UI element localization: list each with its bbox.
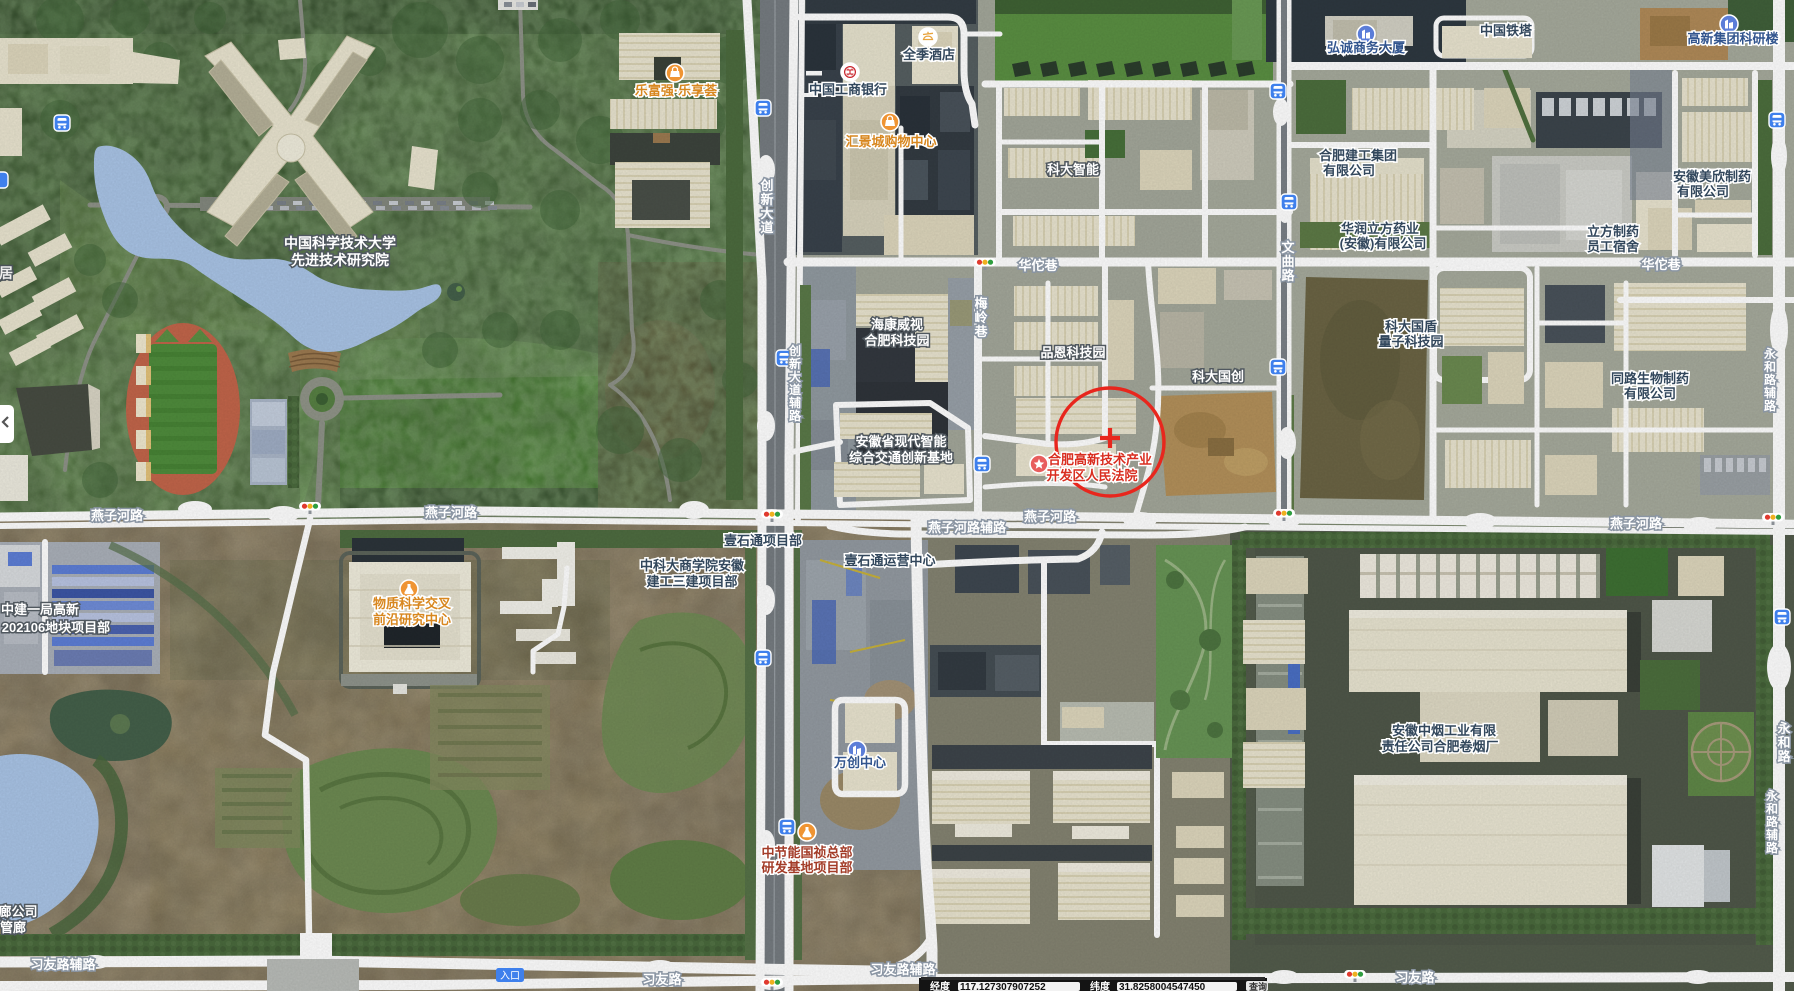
svg-text:文: 文: [1281, 240, 1295, 255]
svg-text:华润立方药业: 华润立方药业: [1341, 221, 1419, 236]
svg-text:科大智能: 科大智能: [1047, 162, 1099, 177]
svg-text:117.127307907252: 117.127307907252: [960, 982, 1046, 991]
svg-text:(安徽)有限公司: (安徽)有限公司: [1340, 236, 1427, 251]
svg-text:路: 路: [1764, 372, 1777, 387]
svg-text:汇景城购物中心: 汇景城购物中心: [845, 134, 936, 149]
svg-text:辅: 辅: [1766, 827, 1778, 842]
svg-text:弘诚商务大厦: 弘诚商务大厦: [1327, 40, 1406, 55]
svg-text:新: 新: [760, 192, 773, 207]
svg-text:壹石通运营中心: 壹石通运营中心: [844, 553, 935, 568]
svg-text:前沿研究中心: 前沿研究中心: [373, 612, 451, 627]
svg-text:查询: 查询: [1248, 981, 1267, 991]
svg-text:202106地块项目部: 202106地块项目部: [2, 620, 110, 635]
svg-text:华佗巷: 华佗巷: [1018, 258, 1058, 273]
svg-text:入口: 入口: [500, 971, 520, 982]
svg-text:燕子河路辅路: 燕子河路辅路: [928, 520, 1007, 535]
svg-text:安徽省现代智能: 安徽省现代智能: [855, 434, 946, 449]
svg-text:管廊: 管廊: [0, 920, 26, 935]
svg-text:综合交通创新基地: 综合交通创新基地: [849, 450, 953, 465]
svg-text:燕子河路: 燕子河路: [425, 505, 478, 520]
svg-text:研发基地项目部: 研发基地项目部: [761, 860, 852, 875]
svg-text:习友路: 习友路: [1395, 970, 1435, 985]
svg-text:永: 永: [1776, 721, 1791, 736]
svg-text:合肥高新技术产业: 合肥高新技术产业: [1048, 452, 1152, 467]
svg-text:责任公司合肥卷烟厂: 责任公司合肥卷烟厂: [1381, 739, 1498, 754]
svg-text:全季酒店: 全季酒店: [902, 47, 955, 62]
svg-text:中建一局高新: 中建一局高新: [1, 602, 79, 617]
svg-text:曲: 曲: [1281, 254, 1294, 269]
svg-text:中国铁塔: 中国铁塔: [1480, 23, 1533, 38]
svg-text:开发区人民法院: 开发区人民法院: [1046, 468, 1137, 483]
svg-text:路: 路: [789, 408, 802, 423]
svg-text:建工三建项目部: 建工三建项目部: [646, 574, 737, 589]
svg-text:乐富强·乐享荟: 乐富强·乐享荟: [635, 83, 718, 98]
svg-text:科大国创: 科大国创: [1192, 369, 1244, 384]
svg-text:路: 路: [1777, 749, 1791, 764]
svg-text:岭: 岭: [974, 310, 987, 325]
svg-text:高新集团科研楼: 高新集团科研楼: [1687, 31, 1778, 46]
svg-text:物质科学交叉: 物质科学交叉: [373, 596, 452, 611]
svg-text:路: 路: [1281, 268, 1295, 283]
svg-text:万创中心: 万创中心: [833, 755, 886, 770]
svg-text:有限公司: 有限公司: [1323, 163, 1375, 178]
svg-text:员工宿舍: 员工宿舍: [1587, 239, 1640, 254]
svg-text:习友路辅路: 习友路辅路: [30, 957, 96, 972]
svg-text:安徽美欣制药: 安徽美欣制药: [1673, 169, 1751, 184]
svg-text:习友路辅路: 习友路辅路: [870, 962, 936, 977]
svg-text:路: 路: [1766, 814, 1779, 829]
svg-text:量子科技园: 量子科技园: [1378, 334, 1443, 349]
svg-text:燕子河路: 燕子河路: [91, 508, 144, 523]
svg-text:路: 路: [1766, 840, 1779, 855]
svg-text:燕子河路: 燕子河路: [1024, 509, 1077, 524]
svg-text:先进技术研究院: 先进技术研究院: [291, 252, 389, 268]
svg-text:海康威视: 海康威视: [871, 317, 923, 332]
svg-text:新: 新: [789, 356, 801, 371]
svg-text:和: 和: [1765, 801, 1778, 816]
svg-text:道: 道: [789, 382, 801, 397]
svg-text:有限公司: 有限公司: [1624, 386, 1676, 401]
svg-text:巷: 巷: [973, 324, 988, 339]
svg-text:华佗巷: 华佗巷: [1641, 257, 1681, 272]
svg-text:纬度: 纬度: [1090, 980, 1111, 991]
svg-text:中节能国祯总部: 中节能国祯总部: [761, 845, 852, 860]
svg-text:创: 创: [759, 178, 773, 193]
svg-text:科大国盾: 科大国盾: [1385, 319, 1437, 334]
svg-text:立方制药: 立方制药: [1587, 224, 1639, 239]
svg-text:中国工商银行: 中国工商银行: [809, 82, 887, 97]
svg-text:辅: 辅: [789, 395, 801, 410]
svg-text:和: 和: [1763, 359, 1776, 374]
svg-text:有限公司: 有限公司: [1677, 184, 1729, 199]
svg-text:合肥建工集团: 合肥建工集团: [1319, 148, 1397, 163]
svg-text:辅: 辅: [1764, 385, 1776, 400]
svg-text:永: 永: [1765, 788, 1778, 803]
svg-text:燕子河路: 燕子河路: [1610, 516, 1663, 531]
svg-text:合肥科技园: 合肥科技园: [864, 333, 929, 348]
svg-text:31.8258004547450: 31.8258004547450: [1119, 982, 1206, 991]
svg-text:路: 路: [1764, 398, 1777, 413]
svg-text:品恩科技园: 品恩科技园: [1040, 345, 1105, 360]
svg-text:大: 大: [789, 369, 801, 384]
svg-text:和: 和: [1777, 735, 1790, 750]
svg-text:大: 大: [760, 206, 773, 221]
svg-text:壹石通项目部: 壹石通项目部: [724, 533, 802, 548]
svg-text:安徽中烟工业有限: 安徽中烟工业有限: [1392, 723, 1497, 738]
svg-text:中国科学技术大学: 中国科学技术大学: [284, 235, 396, 251]
svg-text:同路生物制药: 同路生物制药: [1611, 371, 1689, 386]
svg-text:经度: 经度: [930, 980, 951, 991]
svg-text:习友路: 习友路: [642, 972, 682, 987]
svg-text:创: 创: [788, 343, 801, 358]
svg-text:中科大商学院安徽: 中科大商学院安徽: [640, 558, 745, 573]
svg-text:永: 永: [1763, 346, 1776, 361]
svg-text:廊公司: 廊公司: [0, 904, 38, 919]
svg-text:道: 道: [760, 220, 773, 235]
svg-text:梅: 梅: [974, 296, 987, 311]
